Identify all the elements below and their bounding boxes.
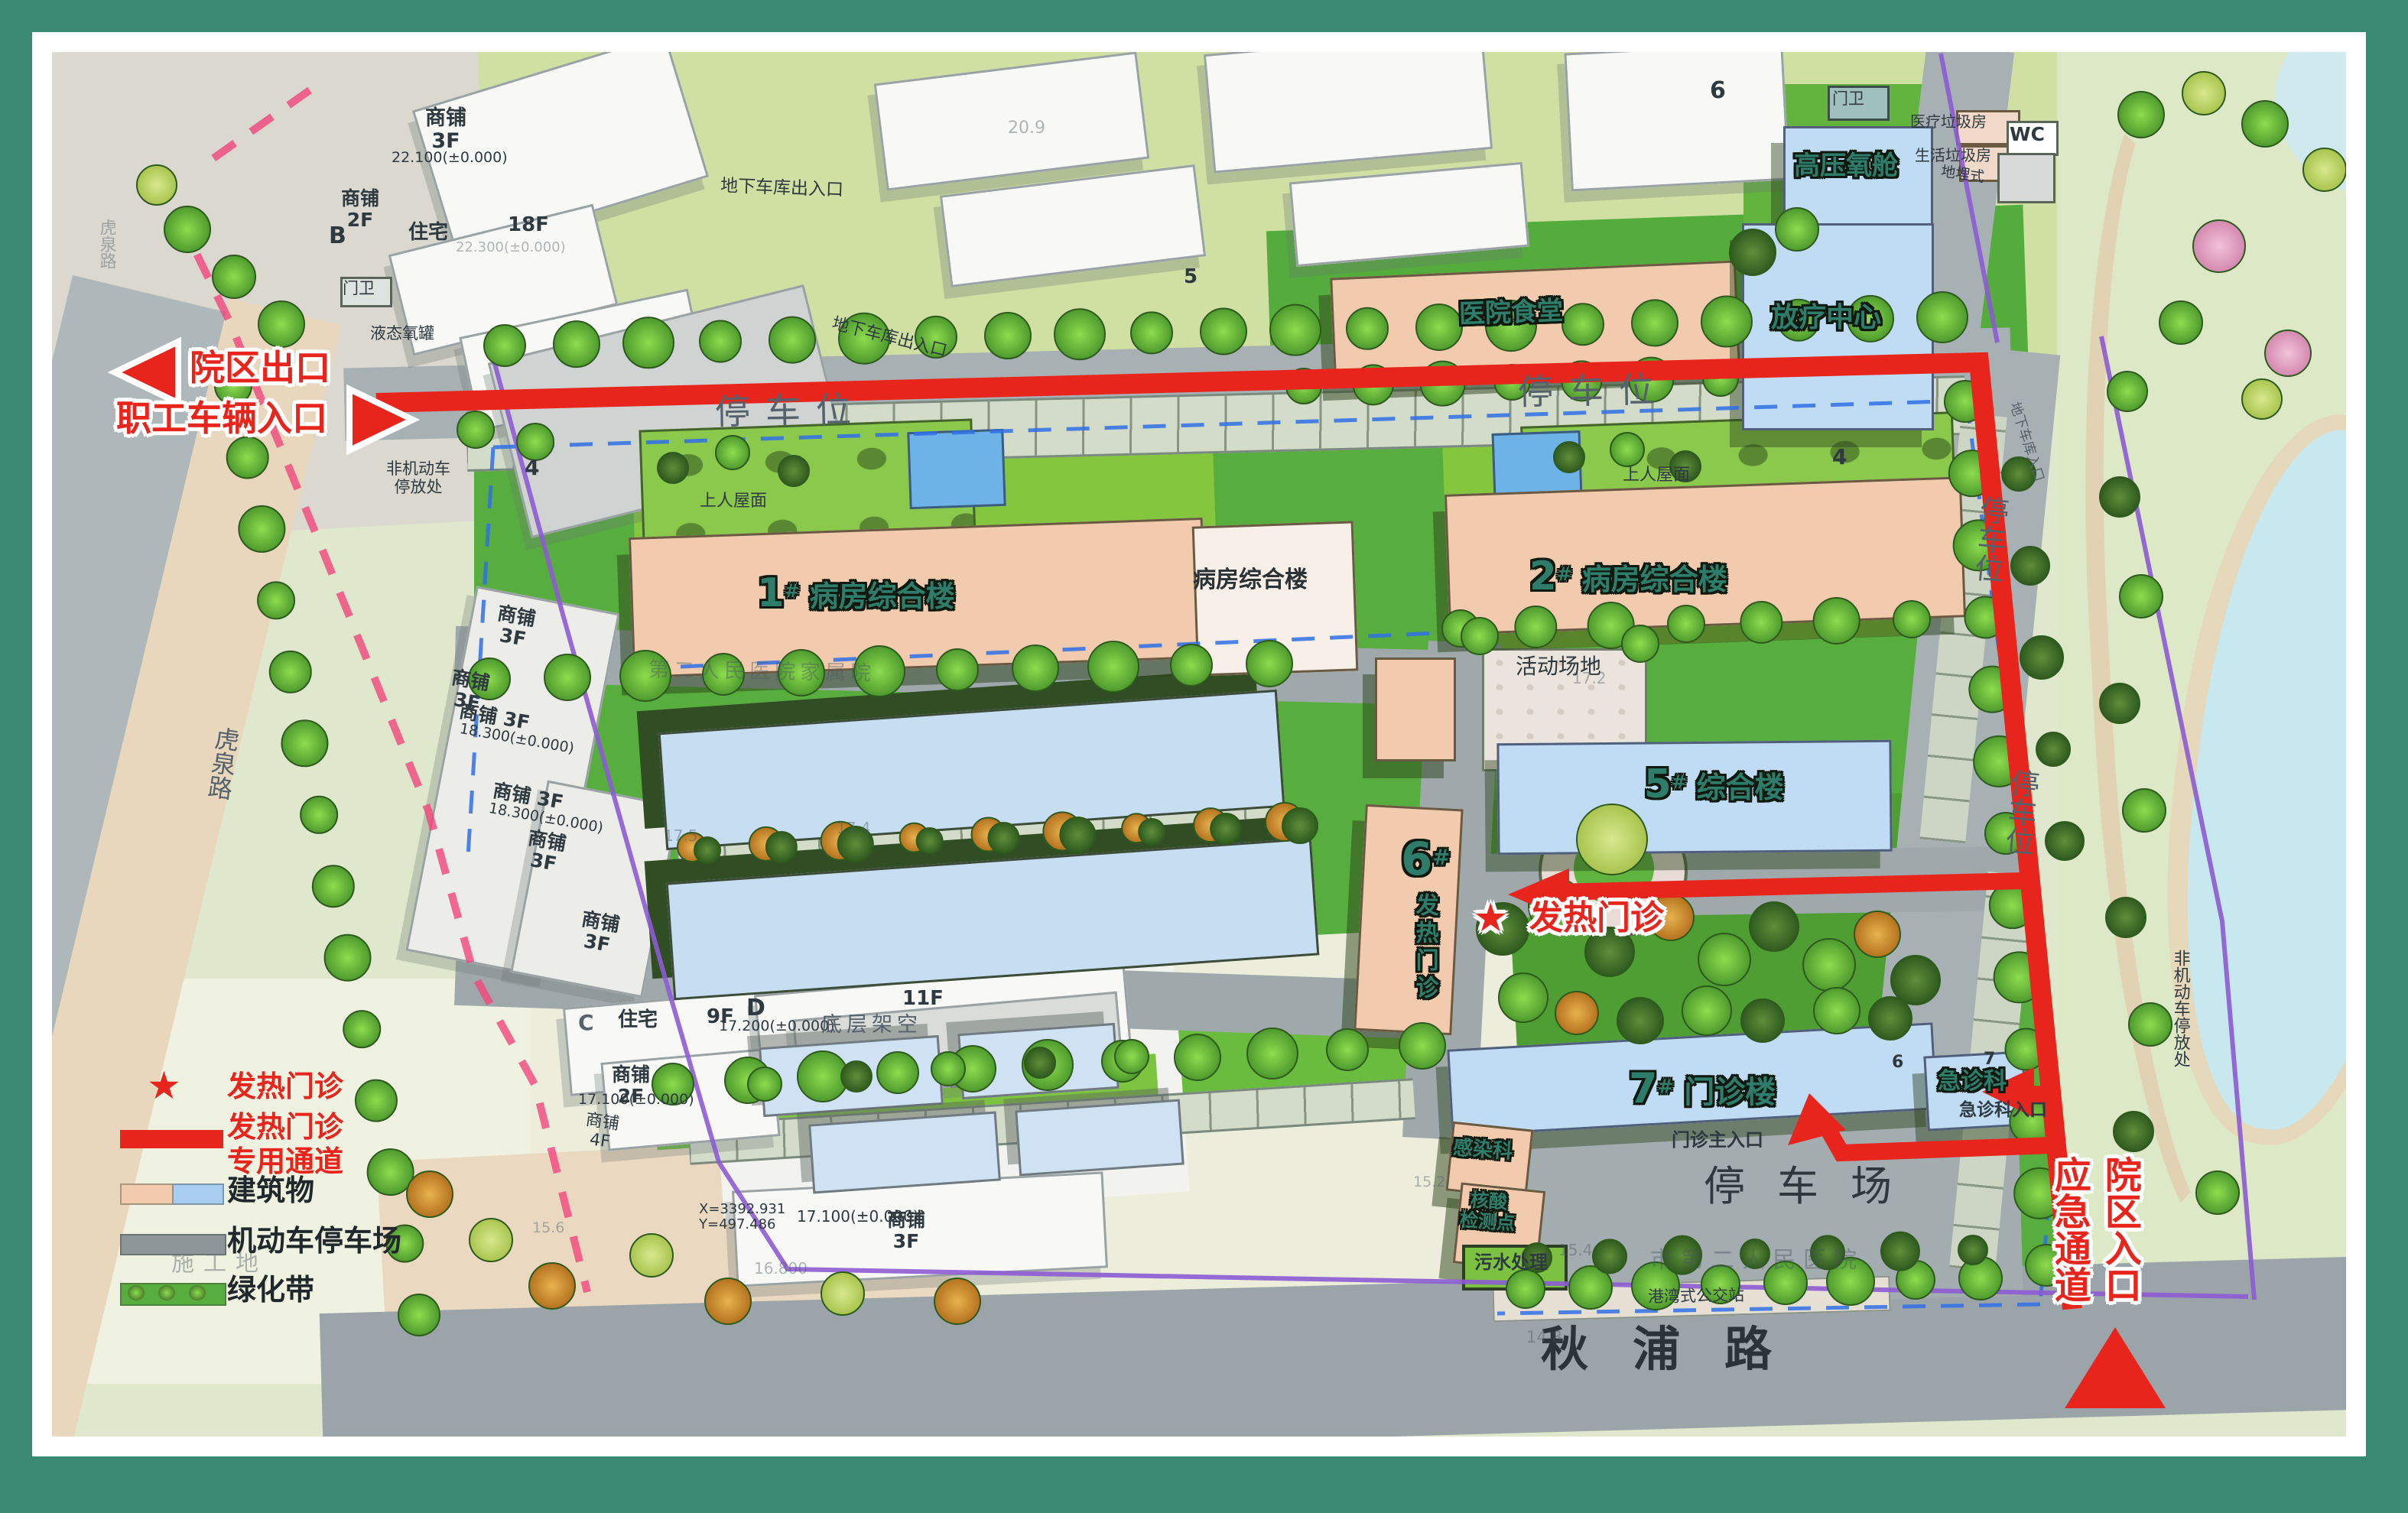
legend-parking-label: 机动车停车场 [227, 1225, 401, 1258]
legend-parking-swatch [120, 1234, 226, 1255]
hospital-site-plan: 院区出口 职工车辆入口 应急通道 院区入口 ★ 发热门诊 急诊科入口 门诊主入口… [0, 0, 2408, 1513]
legend-buildings-label: 建筑物 [227, 1174, 314, 1207]
legend: ★ 发热门诊 发热门诊专用通道 建筑物 机动车停车场 绿化带 [0, 0, 2408, 1513]
legend-route-swatch [120, 1130, 223, 1148]
legend-fever-clinic-label: 发热门诊 [227, 1070, 343, 1103]
legend-greenbelt-tree-2 [158, 1285, 175, 1300]
legend-greenbelt-label: 绿化带 [227, 1274, 314, 1307]
legend-route-label: 发热门诊专用通道 [227, 1110, 343, 1179]
legend-star-icon: ★ [147, 1064, 181, 1107]
legend-greenbelt-tree-3 [189, 1285, 206, 1300]
legend-building-blue-swatch [172, 1183, 224, 1205]
legend-building-pink-swatch [120, 1183, 174, 1205]
legend-greenbelt-tree-1 [128, 1285, 145, 1300]
